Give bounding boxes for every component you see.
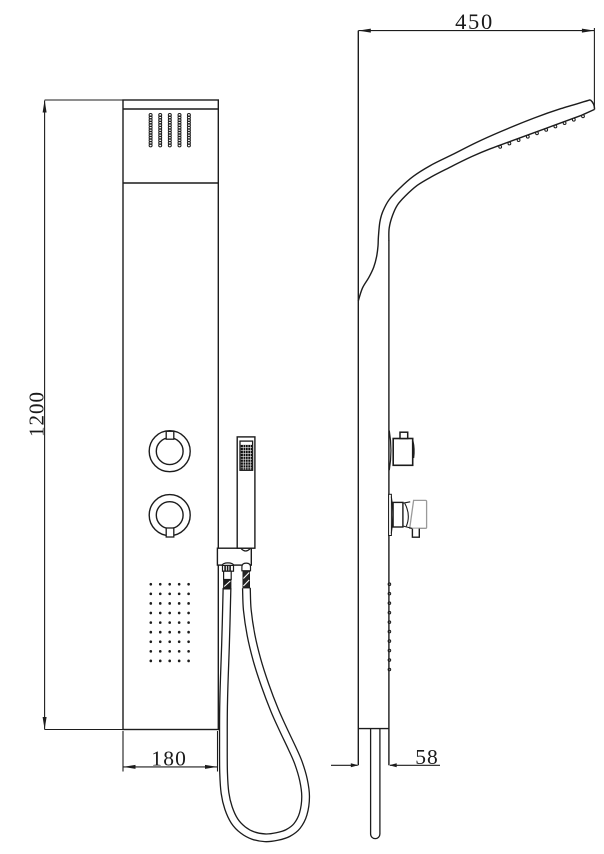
svg-text:450: 450 [455, 9, 494, 34]
svg-text:58: 58 [415, 745, 439, 769]
svg-text:1200: 1200 [24, 391, 48, 437]
svg-text:180: 180 [151, 746, 187, 770]
